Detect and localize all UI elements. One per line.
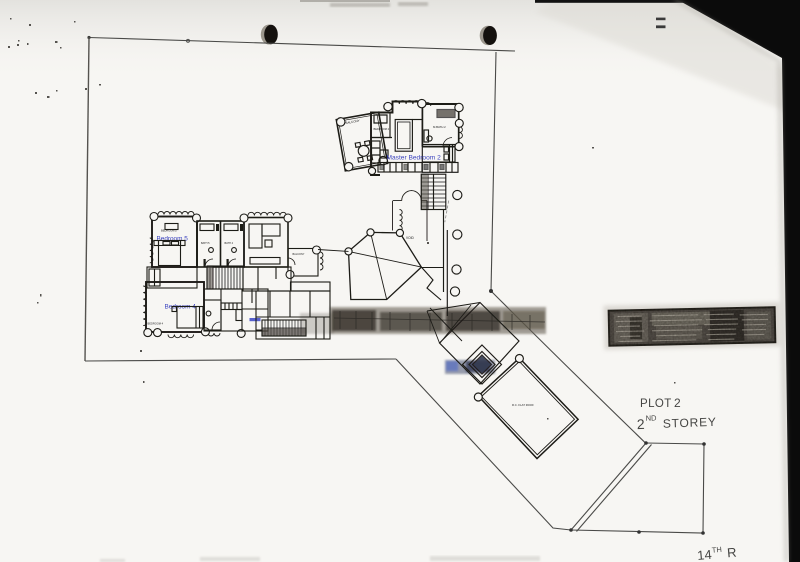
svg-text:M.BATH 2: M.BATH 2 bbox=[433, 125, 446, 129]
svg-text:Master Bedroom 2: Master Bedroom 2 bbox=[387, 155, 442, 162]
svg-text:BALCONY: BALCONY bbox=[293, 253, 305, 256]
svg-text:R.C. FLAT ROOF: R.C. FLAT ROOF bbox=[512, 403, 534, 407]
svg-text:STOREY: STOREY bbox=[663, 415, 717, 431]
svg-text:BEDROOM 2: BEDROOM 2 bbox=[374, 127, 390, 131]
svg-text:2: 2 bbox=[637, 416, 646, 432]
svg-text:VOID: VOID bbox=[406, 236, 414, 240]
svg-text:2: 2 bbox=[674, 396, 681, 410]
svg-text:BATH 4: BATH 4 bbox=[225, 242, 234, 245]
svg-text:PLOT: PLOT bbox=[640, 398, 672, 410]
svg-text:BEDROOM 4: BEDROOM 4 bbox=[148, 322, 164, 326]
svg-text:BATH 5: BATH 5 bbox=[201, 242, 210, 245]
svg-text:ND: ND bbox=[645, 413, 657, 422]
svg-text:14: 14 bbox=[697, 547, 713, 562]
svg-text:R: R bbox=[726, 545, 737, 561]
svg-text:TH: TH bbox=[711, 545, 722, 555]
